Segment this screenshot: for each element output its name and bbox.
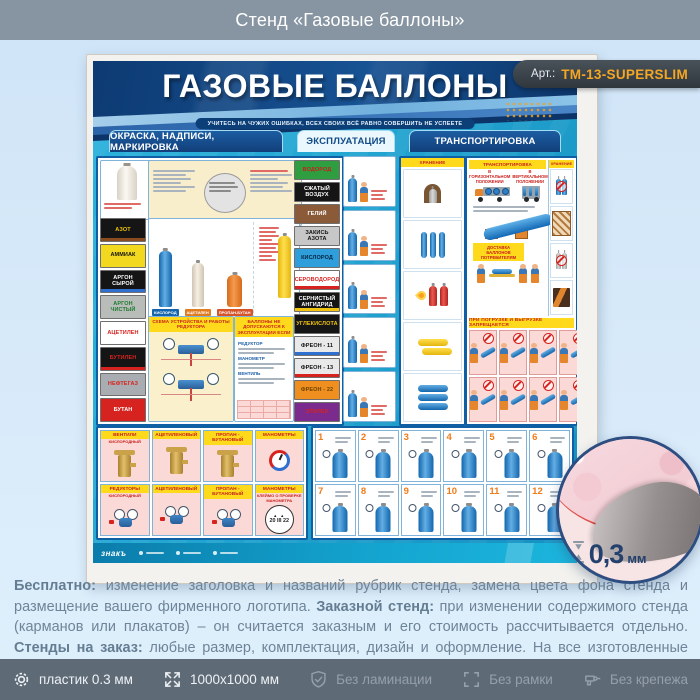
cylinder-examples-panel: КИСЛОРОД АЦЕТИЛЕН ПРОПАН-БУТАН — [148, 218, 300, 322]
storage-column-right: ХРАНЕНИЕ — [548, 160, 574, 316]
poster-tabs: ОКРАСКА, НАДПИСИ, МАРКИРОВКАЭКСПЛУАТАЦИЯ… — [109, 130, 561, 152]
thickness-value: 0,3 — [589, 539, 624, 570]
gauge-icon — [323, 450, 331, 458]
prohibited-actions-grid — [469, 330, 574, 422]
thickness-icon — [572, 541, 585, 568]
step-panel-11: 11 — [486, 484, 527, 536]
equipment-panel-манометры: МАНОМЕТРЫ — [255, 430, 305, 482]
equipment-panel-пропан-бутановый: ПРОПАН - БУТАНОВЫЙ — [203, 484, 253, 536]
spec-label: 1000х1000 мм — [190, 672, 279, 687]
gauge-icon — [537, 450, 545, 458]
footer-contact-item — [213, 551, 238, 555]
pressure-table — [237, 400, 291, 419]
step-number: 9 — [404, 486, 409, 497]
not-allowed-item-вентиль: ВЕНТИЛЬ — [238, 371, 290, 384]
propane-cylinder: ПРОПАН-БУТАН — [217, 275, 253, 316]
transport-subtitle-vertical: В ВЕРТИКАЛЬНОМ ПОЛОЖЕНИИ — [512, 170, 547, 184]
worker-illustration — [500, 348, 508, 363]
transport-panel: ТРАНСПОРТИРОВКА В ГОРИЗОНТАЛЬНОМ ПОЛОЖЕН… — [469, 160, 546, 316]
badge-prefix: Арт.: — [531, 68, 555, 80]
cylinder-illustration — [480, 393, 496, 405]
resize-icon — [163, 670, 182, 689]
loading-prohibited-banner: ПРИ ПОГРУЗКЕ И ВЫГРУЗКЕ ЗАПРЕЩАЕТСЯ — [469, 318, 574, 328]
step-number: 2 — [361, 432, 366, 443]
storage-tagged-panel — [550, 243, 573, 278]
equipment-subtitle: КЛЕЙМО О ПРОВЕРКЕ МАНОМЕТРА — [256, 494, 304, 503]
bottom-strip: ВЕНТИЛИКИСЛОРОДНЫЙАЦЕТИЛЕНОВЫЙПРОПАН - Б… — [96, 426, 574, 540]
spec-label: Без рамки — [489, 672, 553, 687]
workers-carrying-illustration — [469, 263, 546, 283]
passport-stamp-circle — [204, 173, 246, 213]
spec-item-без-рамки: Без рамки — [462, 670, 553, 689]
truck-illustration — [475, 186, 509, 202]
cylinder-illustration — [504, 452, 519, 478]
regulator-diagram — [158, 373, 224, 403]
step-panel-3: 3 — [401, 430, 442, 482]
not-allowed-item-манометр: МАНОМЕТР — [238, 356, 290, 369]
prohibition-icon — [573, 380, 577, 391]
cylinder-illustration — [333, 452, 348, 478]
cylinder-illustration — [348, 232, 357, 256]
verification-stamp: ▲ ▲20 III 22 — [265, 505, 294, 534]
spec-label: Без крепежа — [610, 672, 688, 687]
storage-crate-panel — [550, 206, 573, 241]
storage-title: ХРАНЕНИЕ — [401, 158, 464, 167]
thickness-unit: мм — [627, 551, 646, 566]
step-panel-1: 1 — [315, 430, 356, 482]
gas-label-сжатый-воздух: СЖАТЫЙ ВОЗДУХ — [294, 182, 340, 202]
equipment-title: АЦЕТИЛЕНОВЫЙ — [153, 431, 201, 439]
equipment-panel-пропан-бутановый: ПРОПАН - БУТАНОВЫЙ — [203, 430, 253, 482]
worker-illustration — [360, 187, 368, 202]
poster: ГАЗОВЫЕ БАЛЛОНЫ УЧИТЕСЬ НА ЧУЖИХ ОШИБКАХ… — [93, 61, 577, 563]
cylinder-illustration — [376, 506, 391, 532]
valve-icon — [221, 455, 234, 477]
footer-contact-item — [139, 551, 164, 555]
gas-label-фреон-22: ФРЕОН - 22 — [294, 380, 340, 400]
spec-label: Без ламинации — [336, 672, 432, 687]
acetylene-cylinder: АЦЕТИЛЕН — [185, 263, 211, 316]
storage-cylinders-panel — [403, 220, 462, 269]
gas-label-бутилен: БУТИЛЕН — [100, 347, 146, 371]
stamp-text: 20 III 22 — [270, 518, 289, 524]
storage-sign-panel — [550, 280, 573, 315]
cylinder-illustration — [510, 346, 526, 358]
worker-illustration — [470, 395, 478, 410]
exploitation-panel — [343, 264, 396, 315]
gas-label-сернистый-ангидрид: СЕРНИСТЫЙ АНГИДРИД — [294, 292, 340, 312]
prohibition-icon — [513, 333, 524, 344]
poster-footer: знакъ — [93, 543, 577, 563]
step-number: 6 — [532, 432, 537, 443]
cylinder-illustration — [510, 393, 526, 405]
fastener-icon — [583, 670, 602, 689]
step-panel-8: 8 — [358, 484, 399, 536]
tab-эксплуатация: ЭКСПЛУАТАЦИЯ — [297, 130, 395, 152]
prohibition-icon — [483, 380, 494, 391]
cylinder-illustration — [480, 346, 496, 358]
step-panel-5: 5 — [486, 430, 527, 482]
schema-title: СХЕМА УСТРОЙСТВА И РАБОТЫ РЕДУКТОРА — [149, 317, 233, 332]
step-panel-10: 10 — [443, 484, 484, 536]
prohibited-action-panel — [529, 377, 557, 422]
storage2-title: ХРАНЕНИЕ — [549, 160, 574, 168]
step-number: 11 — [489, 486, 499, 497]
step-number: 12 — [532, 486, 543, 497]
gas-label-аммиак: АММИАК — [100, 244, 146, 268]
storage-niche-panel — [403, 169, 462, 218]
valve-icon — [170, 452, 183, 474]
step-number: 10 — [446, 486, 457, 497]
cylinder-illustration — [376, 452, 391, 478]
gas-label-аргон-сырой: АРГОН СЫРОЙ — [100, 270, 146, 294]
gas-label-гелий: ГЕЛИЙ — [294, 204, 340, 224]
regulator-icon — [112, 509, 138, 530]
cylinder-illustration — [570, 393, 577, 405]
storage-column: ХРАНЕНИЕ — [399, 156, 466, 426]
gas-color-labels-left: АЗОТАММИАКАРГОН СЫРОЙАРГОН ЧИСТЫЙАЦЕТИЛЕ… — [100, 218, 146, 422]
equipment-panel-манометры: МАНОМЕТРЫКЛЕЙМО О ПРОВЕРКЕ МАНОМЕТРА▲ ▲2… — [255, 484, 305, 536]
step-panel-2: 2 — [358, 430, 399, 482]
flame-icon — [415, 289, 428, 302]
description-bold: Стенды на заказ: — [14, 640, 143, 656]
spec-label: пластик 0.3 мм — [39, 672, 133, 687]
equipment-panel-ацетиленовый: АЦЕТИЛЕНОВЫЙ — [152, 430, 202, 482]
step-number: 3 — [404, 432, 409, 443]
prohibition-icon — [483, 333, 494, 344]
article-badge: Арт.: ТМ-13-SUPERSLIM — [513, 60, 700, 88]
worker-illustration — [360, 348, 368, 363]
stamp-marking-diagram — [148, 160, 302, 226]
prohibited-action-panel — [469, 377, 497, 422]
worker-illustration — [530, 348, 538, 363]
not-allowed-title: БАЛЛОНЫ НЕ ДОПУСКАЮТСЯ К ЭКСПЛУАТАЦИИ ЕС… — [235, 317, 293, 337]
regulator-icon — [215, 509, 241, 530]
equipment-grid: ВЕНТИЛИКИСЛОРОДНЫЙАЦЕТИЛЕНОВЫЙПРОПАН - Б… — [96, 426, 308, 540]
storage-rows-panel — [403, 373, 462, 422]
cylinder-illustration — [540, 346, 556, 358]
prohibited-action-panel — [529, 330, 557, 375]
gas-label-фреон-11: ФРЕОН - 11 — [294, 336, 340, 356]
gas-label-этилен: ЭТИЛЕН — [294, 402, 340, 422]
tab-окраска-надписи-маркировка: ОКРАСКА, НАДПИСИ, МАРКИРОВКА — [109, 130, 283, 152]
gas-label-азот: АЗОТ — [100, 218, 146, 242]
badge-code: ТМ-13-SUPERSLIM — [561, 67, 688, 82]
not-allowed-panel: БАЛЛОНЫ НЕ ДОПУСКАЮТСЯ К ЭКСПЛУАТАЦИИ ЕС… — [234, 316, 294, 422]
gauge-icon — [409, 450, 417, 458]
white-cylinder-illustration — [117, 166, 137, 200]
gas-label-аргон-чистый: АРГОН ЧИСТЫЙ — [100, 295, 146, 319]
cylinder-illustration — [419, 452, 434, 478]
thickness-label: 0,3 мм — [572, 539, 647, 570]
equipment-panel-ацетиленовый: АЦЕТИЛЕНОВЫЙ — [152, 484, 202, 536]
exploitation-strip — [343, 156, 396, 422]
gas-label-углекислота: УГЛЕКИСЛОТА — [294, 314, 340, 334]
step-panel-7: 7 — [315, 484, 356, 536]
not-allowed-item-редуктор: РЕДУКТОР — [238, 341, 290, 354]
valve-icon — [118, 455, 131, 477]
gauge-icon — [366, 450, 374, 458]
worker-illustration — [360, 402, 368, 417]
step-number: 5 — [489, 432, 494, 443]
worker-illustration — [360, 241, 368, 256]
oxygen-cylinder: КИСЛОРОД — [152, 251, 179, 316]
equipment-panel-редукторы: РЕДУКТОРЫКИСЛОРОДНЫЙ — [100, 484, 150, 536]
worker-illustration — [470, 348, 478, 363]
spec-item-пластик-0-3-мм: пластик 0.3 мм — [12, 670, 133, 689]
gas-label-нефтегаз: НЕФТЕГАЗ — [100, 373, 146, 397]
gauge-icon — [494, 450, 502, 458]
prohibition-icon — [543, 380, 554, 391]
gas-label-фреон-13: ФРЕОН - 13 — [294, 358, 340, 378]
storage-pile-panel — [403, 322, 462, 371]
step-number: 4 — [446, 432, 451, 443]
gauge-icon — [451, 450, 459, 458]
step-number: 1 — [318, 432, 323, 443]
prohibition-icon — [543, 333, 554, 344]
step-number: 8 — [361, 486, 366, 497]
poster-frame: ГАЗОВЫЕ БАЛЛОНЫ УЧИТЕСЬ НА ЧУЖИХ ОШИБКАХ… — [86, 54, 598, 584]
transport-title: ТРАНСПОРТИРОВКА — [469, 160, 546, 169]
worker-illustration — [560, 348, 568, 363]
step-number: 7 — [318, 486, 323, 497]
cylinder-illustration — [348, 178, 357, 202]
equipment-panel-вентили: ВЕНТИЛИКИСЛОРОДНЫЙ — [100, 430, 150, 482]
cylinder-illustration — [348, 339, 357, 363]
usage-steps-grid: 123456789101112 — [311, 426, 574, 540]
truck-rear-illustration — [522, 186, 540, 202]
cylinder-dimensions-diagram — [100, 160, 154, 220]
gauge-icon — [451, 504, 459, 512]
storage-prohibited-panel — [550, 169, 573, 204]
equipment-title: ВЕНТИЛИ — [101, 431, 149, 439]
equipment-title: ПРОПАН - БУТАНОВЫЙ — [204, 485, 252, 499]
gas-label-закись-азота: ЗАКИСЬ АЗОТА — [294, 226, 340, 246]
dot-pattern — [505, 101, 553, 121]
regulator-icon — [163, 506, 189, 527]
exploitation-panel — [343, 371, 396, 422]
equipment-title: МАНОМЕТРЫ — [256, 431, 304, 439]
step-panel-4: 4 — [443, 430, 484, 482]
cylinder-illustration — [348, 285, 357, 309]
worker-illustration — [530, 395, 538, 410]
prohibited-action-panel — [559, 377, 577, 422]
worker-illustration — [360, 294, 368, 309]
gas-label-кислород: КИСЛОРОД — [294, 248, 340, 268]
prohibited-action-panel — [559, 330, 577, 375]
equipment-title: АЦЕТИЛЕНОВЫЙ — [153, 485, 201, 493]
paint-marking-section: АЗОТАММИАКАРГОН СЫРОЙАРГОН ЧИСТЫЙАЦЕТИЛЕ… — [96, 156, 344, 426]
material-inset: 0,3 мм — [556, 436, 700, 584]
exploitation-panel — [343, 317, 396, 368]
storage-fire-panel — [403, 271, 462, 320]
gear-icon — [12, 670, 31, 689]
gauge-icon — [409, 504, 417, 512]
brand-logo: знакъ — [101, 549, 127, 558]
transport-subtitle-horizontal: В ГОРИЗОНТАЛЬНОМ ПОЛОЖЕНИИ — [469, 170, 510, 184]
regulator-schema-panel: СХЕМА УСТРОЙСТВА И РАБОТЫ РЕДУКТОРА — [148, 316, 234, 422]
prohibition-icon — [513, 380, 524, 391]
worker-illustration — [560, 395, 568, 410]
equipment-title: ПРОПАН - БУТАНОВЫЙ — [204, 431, 252, 445]
gauge-icon — [323, 504, 331, 512]
equipment-title: МАНОМЕТРЫ — [256, 485, 304, 493]
gas-label-сероводород: СЕРОВОДОРОД — [294, 270, 340, 290]
top-bar: Стенд «Газовые баллоны» — [0, 0, 700, 40]
transport-section: ТРАНСПОРТИРОВКА В ГОРИЗОНТАЛЬНОМ ПОЛОЖЕН… — [465, 156, 577, 426]
prohibited-action-panel — [499, 377, 527, 422]
damage-inspection-diagram — [253, 222, 296, 318]
quote-banner: УЧИТЕСЬ НА ЧУЖИХ ОШИБКАХ, ВСЕХ СВОИХ ВСЁ… — [196, 118, 475, 129]
spec-item-без-ламинации: Без ламинации — [309, 670, 432, 689]
cylinder-illustration — [504, 506, 519, 532]
spec-item-без-крепежа: Без крепежа — [583, 670, 688, 689]
frame-icon — [462, 670, 481, 689]
yellow-cylinder-illustration — [278, 236, 291, 298]
cylinder-illustration — [461, 452, 476, 478]
gas-label-бутан: БУТАН — [100, 398, 146, 422]
regulator-diagram — [158, 338, 224, 368]
cylinder-illustration — [348, 393, 357, 417]
cylinder-illustration — [333, 506, 348, 532]
tab-транспортировка: ТРАНСПОРТИРОВКА — [409, 130, 561, 152]
spec-bar: пластик 0.3 мм1000х1000 ммБез ламинацииБ… — [0, 659, 700, 700]
gas-label-водород: ВОДОРОД — [294, 160, 340, 180]
exploitation-panel — [343, 156, 396, 207]
exploitation-panel — [343, 210, 396, 261]
delivery-label: ДОСТАВКА БАЛЛОНОВ ПОТРЕБИТЕЛЯМ — [473, 243, 524, 261]
equipment-title: РЕДУКТОРЫ — [101, 485, 149, 493]
cylinder-illustration — [419, 506, 434, 532]
prohibited-action-panel — [499, 330, 527, 375]
description-bold: Бесплатно: — [14, 578, 96, 594]
cylinder-illustration — [570, 346, 577, 358]
spec-item-1000х1000-мм: 1000х1000 мм — [163, 670, 279, 689]
prohibition-icon — [573, 333, 577, 344]
description-bold: Заказной стенд: — [316, 599, 434, 615]
footer-contact-item — [176, 551, 201, 555]
step-panel-9: 9 — [401, 484, 442, 536]
gauge-icon — [537, 504, 545, 512]
cylinder-illustration — [461, 506, 476, 532]
cylinder-on-blocks-illustration — [473, 215, 542, 241]
worker-illustration — [500, 395, 508, 410]
gauge-icon — [366, 504, 374, 512]
cylinder-illustration — [540, 393, 556, 405]
shield-check-icon — [309, 670, 328, 689]
gas-color-labels-right: ВОДОРОДСЖАТЫЙ ВОЗДУХГЕЛИЙЗАКИСЬ АЗОТАКИС… — [294, 160, 340, 422]
gauge-icon — [494, 504, 502, 512]
prohibited-action-panel — [469, 330, 497, 375]
gauge-icon — [269, 450, 290, 471]
page-title: Стенд «Газовые баллоны» — [235, 10, 464, 31]
gas-label-ацетилен: АЦЕТИЛЕН — [100, 321, 146, 345]
